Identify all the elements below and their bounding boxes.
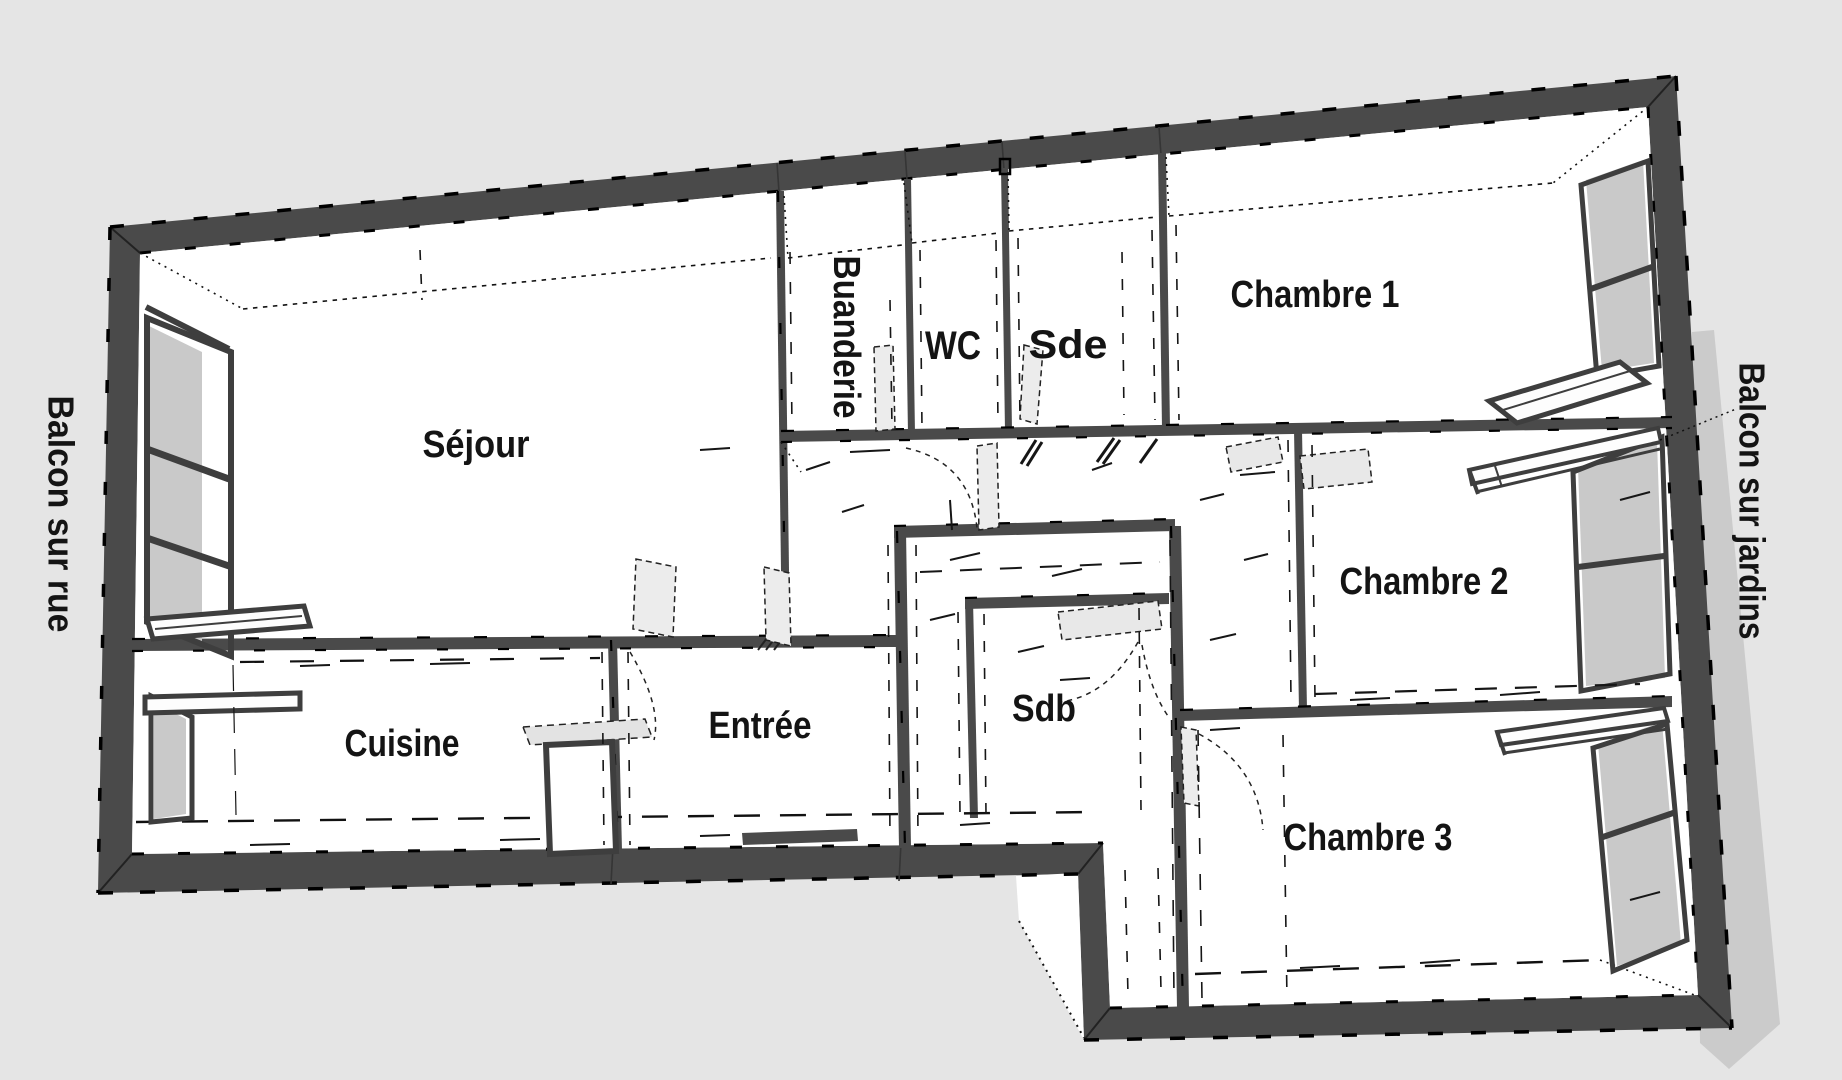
svg-text:Sde: Sde [1029,323,1108,367]
svg-text:Sdb: Sdb [1012,688,1076,730]
svg-text:Chambre 3: Chambre 3 [1284,817,1453,859]
svg-text:Chambre 2: Chambre 2 [1340,561,1509,603]
svg-text:Balcon sur rue: Balcon sur rue [41,396,82,633]
svg-text:Séjour: Séjour [423,424,530,466]
svg-text:Buanderie: Buanderie [825,256,867,419]
svg-text:WC: WC [925,324,981,368]
svg-text:Entrée: Entrée [709,705,812,747]
svg-text:Chambre 1: Chambre 1 [1231,274,1400,316]
svg-text:Balcon sur jardins: Balcon sur jardins [1732,363,1773,640]
svg-text:Cuisine: Cuisine [345,723,460,765]
